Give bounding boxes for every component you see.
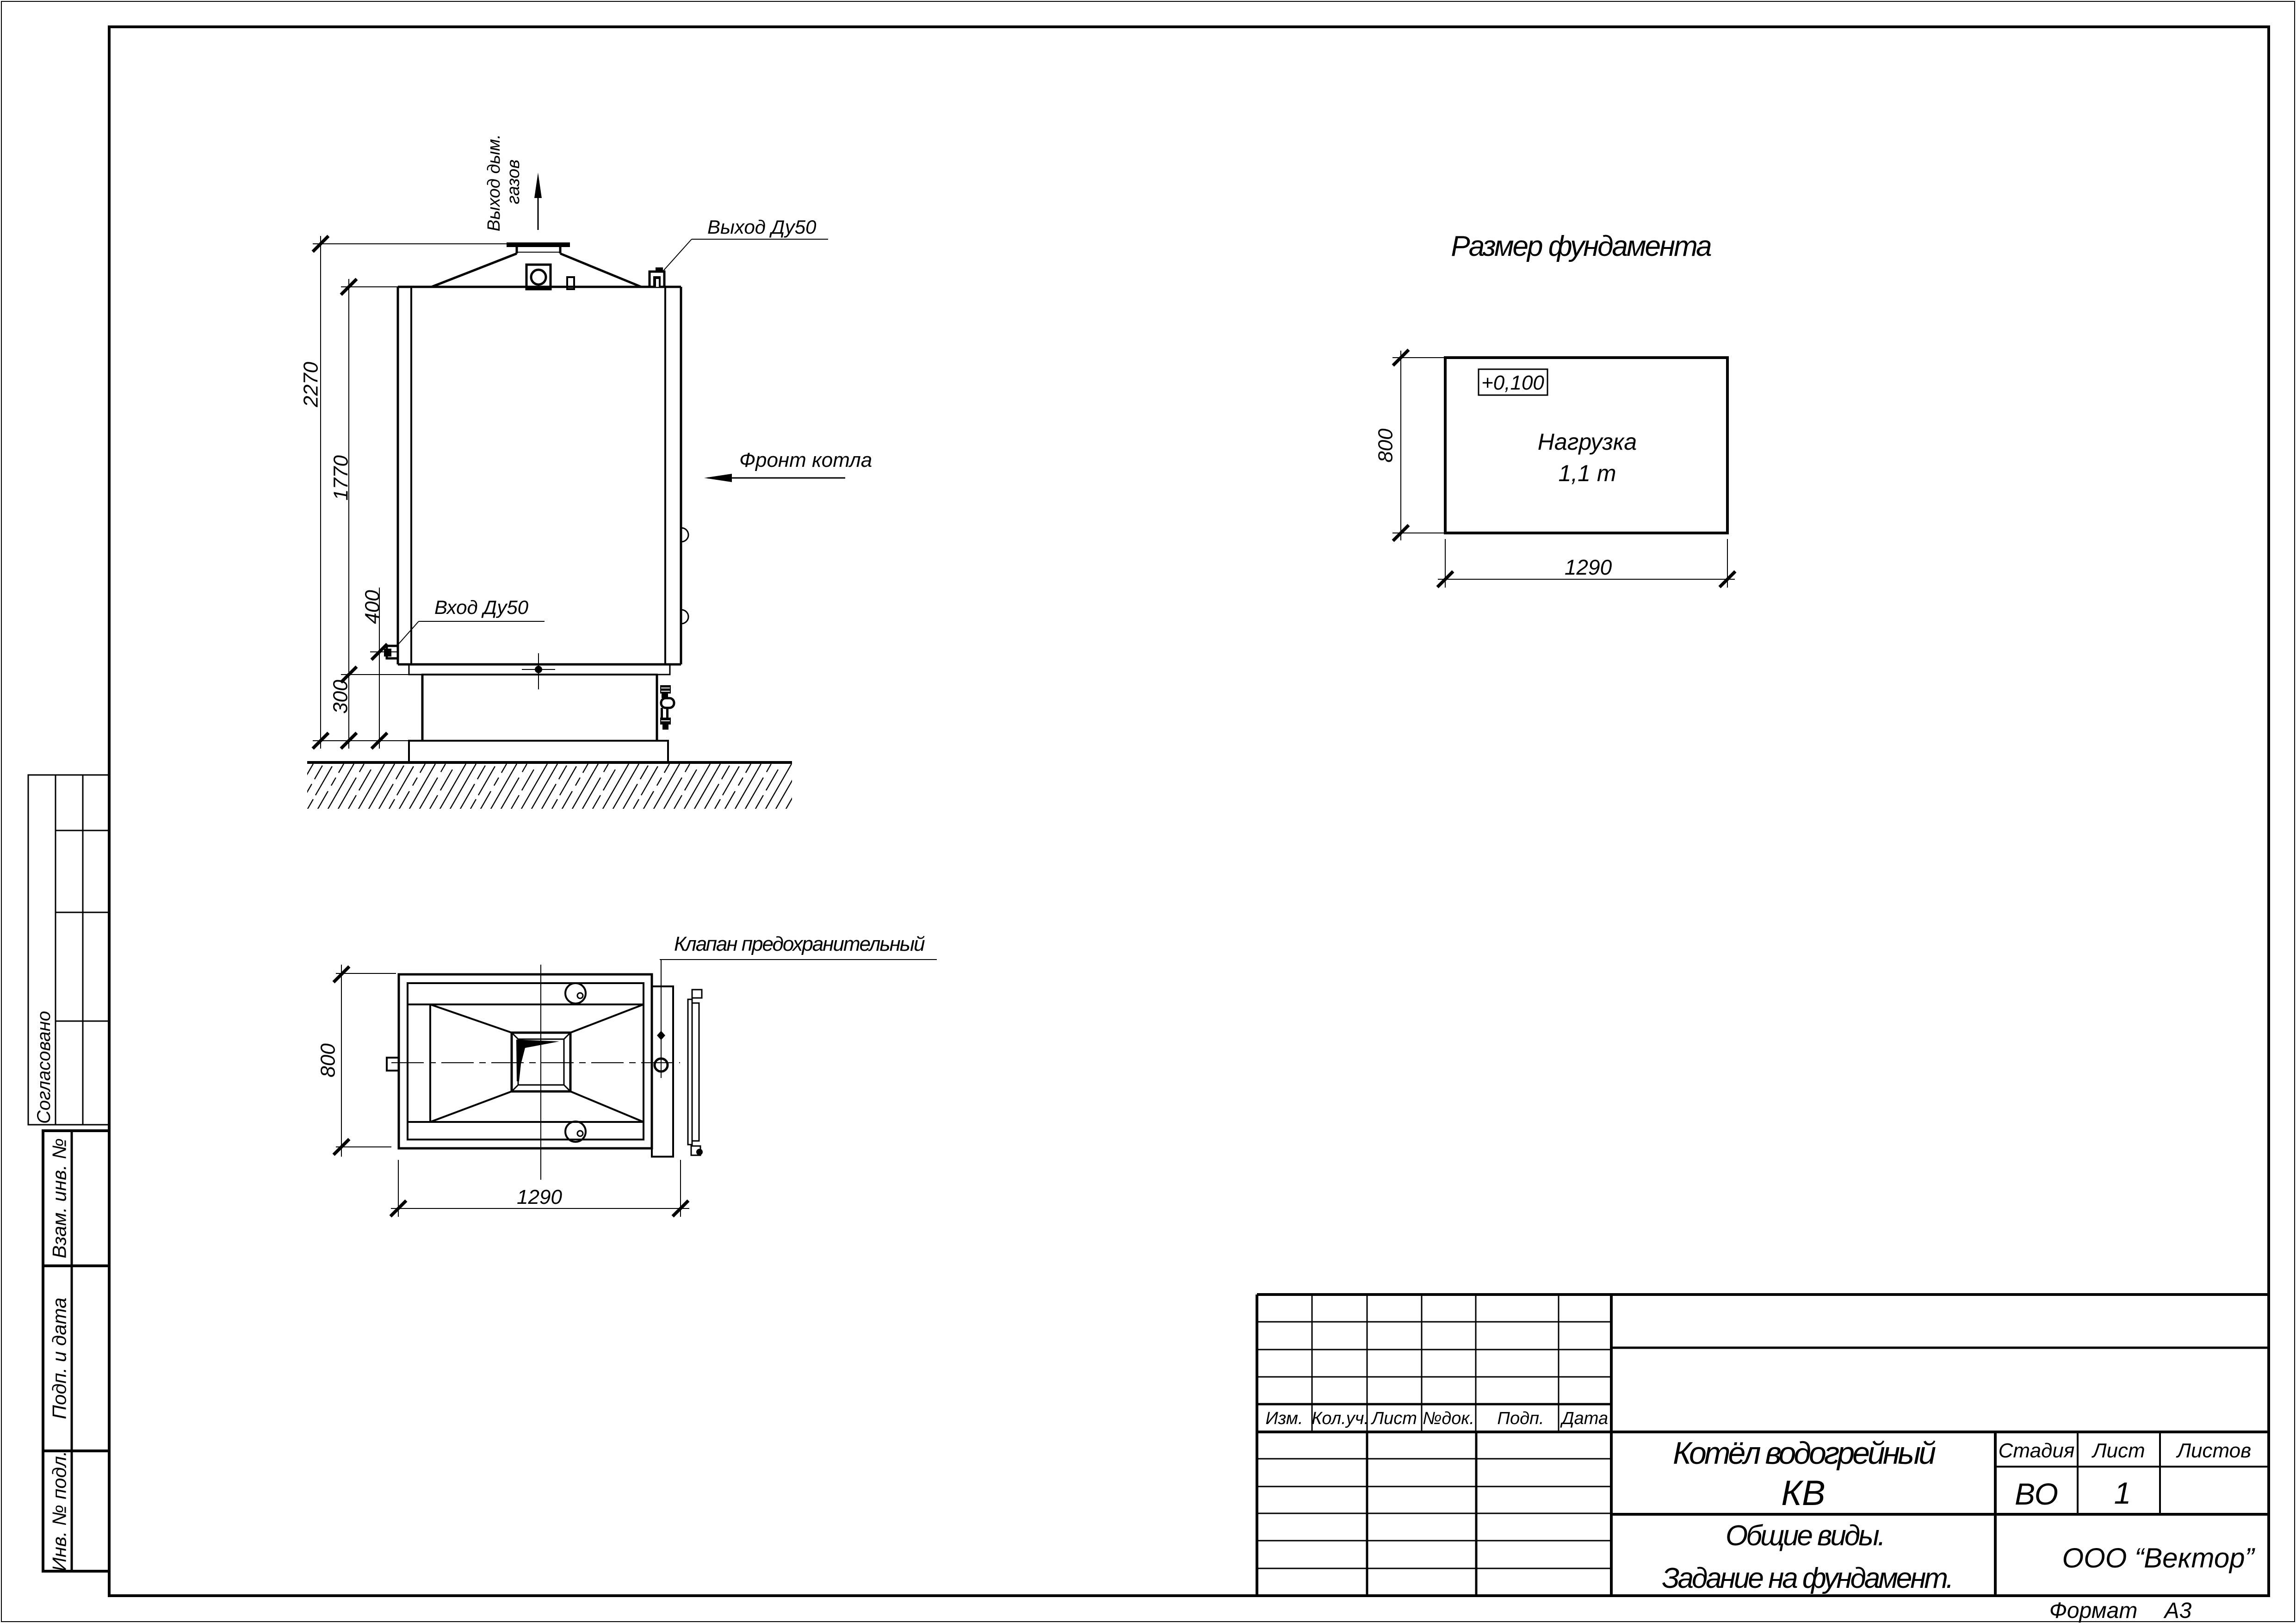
svg-text:Нагрузка: Нагрузка — [1538, 429, 1637, 455]
svg-text:Подп.: Подп. — [1497, 1409, 1544, 1428]
svg-text:Лист: Лист — [2091, 1439, 2145, 1462]
svg-text:Общие виды.: Общие виды. — [1726, 1520, 1884, 1552]
svg-text:Выход Ду50: Выход Ду50 — [707, 216, 817, 238]
svg-text:Выход дым.: Выход дым. — [484, 134, 504, 231]
svg-text:+0,100: +0,100 — [1481, 372, 1544, 394]
svg-text:300: 300 — [329, 680, 352, 714]
svg-text:Фронт котла: Фронт котла — [739, 449, 872, 471]
svg-text:800: 800 — [317, 1043, 340, 1078]
svg-text:Котёл водогрейный: Котёл водогрейный — [1673, 1436, 1936, 1471]
svg-text:ООО “Вектор”: ООО “Вектор” — [2062, 1542, 2255, 1573]
svg-text:400: 400 — [361, 590, 384, 624]
svg-text:Размер фундамента: Размер фундамента — [1451, 230, 1711, 262]
svg-text:Листов: Листов — [2176, 1439, 2251, 1462]
svg-text:1290: 1290 — [517, 1186, 562, 1208]
svg-text:Клапан предохранительный: Клапан предохранительный — [674, 933, 925, 955]
svg-text:1,1 т: 1,1 т — [1558, 460, 1616, 486]
svg-text:Задание на фундамент.: Задание на фундамент. — [1662, 1562, 1952, 1594]
svg-text:Согласовано: Согласовано — [34, 1011, 54, 1124]
svg-text:ВО: ВО — [2015, 1477, 2058, 1511]
svg-text:800: 800 — [1374, 428, 1397, 463]
svg-text:1: 1 — [2114, 1476, 2131, 1510]
svg-text:Взам. инв. №: Взам. инв. № — [49, 1138, 70, 1258]
svg-text:А3: А3 — [2163, 1598, 2192, 1623]
svg-text:Формат: Формат — [2049, 1598, 2138, 1623]
svg-text:Инв. № подл.: Инв. № подл. — [49, 1451, 70, 1572]
svg-text:Стадия: Стадия — [1999, 1439, 2075, 1462]
svg-text:Кол.уч.: Кол.уч. — [1312, 1409, 1369, 1428]
svg-text:Дата: Дата — [1560, 1409, 1608, 1428]
svg-text:Подп. и дата: Подп. и дата — [49, 1298, 70, 1419]
svg-text:газов: газов — [504, 160, 523, 204]
svg-text:Изм.: Изм. — [1265, 1409, 1303, 1428]
svg-text:Лист: Лист — [1370, 1409, 1417, 1428]
svg-text:Вход Ду50: Вход Ду50 — [434, 596, 529, 618]
svg-text:КВ: КВ — [1781, 1474, 1825, 1513]
svg-text:№док.: №док. — [1423, 1409, 1474, 1428]
svg-text:1770: 1770 — [330, 455, 353, 501]
svg-text:2270: 2270 — [300, 362, 322, 408]
svg-text:1290: 1290 — [1565, 555, 1612, 579]
